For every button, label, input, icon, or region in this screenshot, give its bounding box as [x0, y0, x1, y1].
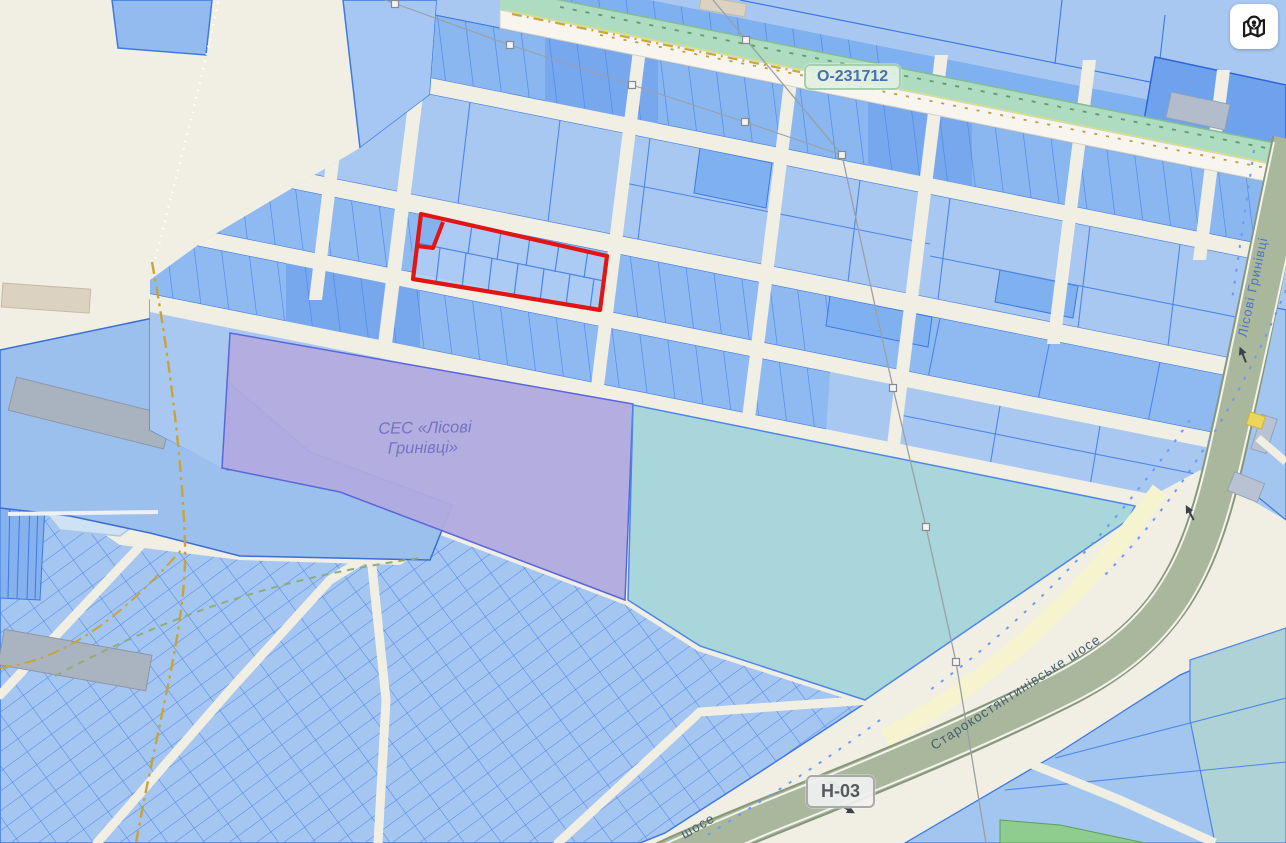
canal [8, 512, 158, 514]
solar-station-label-line2: Гринівці» [388, 438, 459, 457]
road-ref-badge-bottom: Н-03 [806, 775, 875, 808]
road-ref-badge-top: О-231712 [804, 64, 901, 90]
map-graphics: СЕС «Лісові Гринівці» Старокостянтинівсь… [0, 0, 1286, 843]
locate-on-map-button[interactable] [1230, 4, 1278, 49]
solar-station-label-line1: СЕС «Лісові [378, 418, 473, 438]
parcel [112, 0, 212, 55]
map-pin-icon [1240, 13, 1268, 41]
map-canvas[interactable]: СЕС «Лісові Гринівці» Старокостянтинівсь… [0, 0, 1286, 843]
